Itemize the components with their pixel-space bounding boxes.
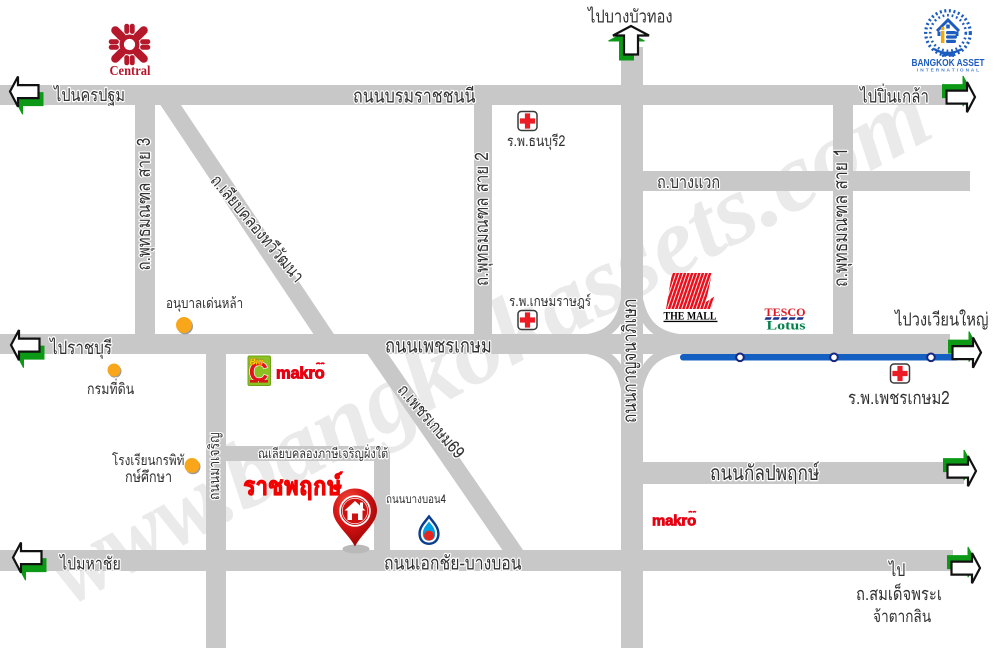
svg-text:BANGKOK ASSET: BANGKOK ASSET <box>912 58 985 69</box>
svg-text:THE MALL: THE MALL <box>664 311 717 323</box>
svg-text:Lotus: Lotus <box>767 318 806 333</box>
svg-text:Central: Central <box>110 63 151 78</box>
svg-text:makro: makro <box>652 513 696 530</box>
svg-text:I N T E R N A T I O N A L: I N T E R N A T I O N A L <box>917 68 979 74</box>
svg-text:Big: Big <box>250 357 265 367</box>
svg-text:makro: makro <box>276 365 325 383</box>
